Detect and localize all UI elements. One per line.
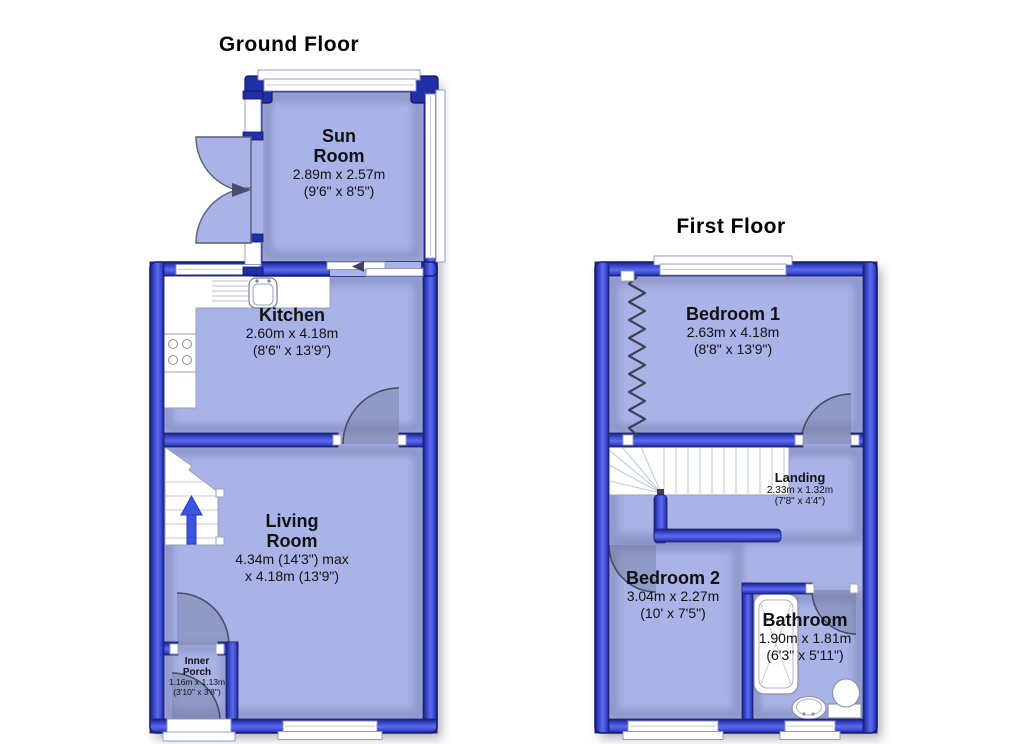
bathroom-label: Bathroom 1.90m x 1.81m (6'3" x 5'11"): [759, 610, 852, 663]
kitchen-living-wall: [164, 433, 338, 447]
door-step: [163, 732, 235, 741]
ground-right-wall: [423, 262, 437, 733]
bedroom1-label: Bedroom 1 2.63m x 4.18m (8'8" x 13'9"): [686, 304, 780, 357]
sun-room-left-window: [245, 99, 261, 133]
door-post: [216, 644, 224, 654]
room-name: Bedroom 1: [686, 304, 780, 324]
ground-left-wall: [150, 262, 164, 733]
room-dimensions-imperial: (3'10" x 3'8"): [169, 688, 225, 698]
room-dimensions-imperial: (9'6" x 8'5"): [293, 183, 386, 200]
door-post: [806, 584, 814, 593]
room-dimensions-metric: 2.89m x 2.57m: [293, 166, 386, 183]
door-post: [795, 435, 803, 445]
bathroom-wall-vertical: [742, 583, 753, 719]
french-doors-swing: [196, 137, 251, 243]
room-dimensions-metric: 2.63m x 4.18m: [686, 324, 780, 341]
room-dimensions-imperial: (6'3" x 5'11"): [759, 647, 852, 664]
room-name: Bedroom 2: [626, 568, 720, 588]
bathroom-wall-top: [742, 583, 812, 594]
inner-porch-label: Inner Porch 1.16m x 1.13m (3'10" x 3'8"): [169, 656, 225, 697]
room-name: Room: [235, 531, 348, 551]
room-dimensions-imperial: (8'8" x 13'9"): [686, 341, 780, 358]
hob: [164, 334, 196, 372]
room-dimensions-metric: 3.04m x 2.27m: [626, 588, 720, 605]
first-left-wall: [595, 262, 609, 733]
door-post: [170, 644, 178, 654]
sliding-door: [327, 261, 423, 276]
window-sill: [278, 732, 382, 740]
kitchen-label: Kitchen 2.60m x 4.18m (8'6" x 13'9"): [246, 305, 339, 358]
door-post: [850, 584, 858, 593]
window-cap: [243, 267, 263, 275]
first-floor-title: First Floor: [676, 215, 785, 239]
door-post: [333, 435, 341, 445]
room-name: Kitchen: [246, 305, 339, 325]
door-post: [621, 271, 634, 281]
room-dimensions-metric: 2.60m x 4.18m: [246, 325, 339, 342]
room-dimensions-imperial: (8'6" x 13'9"): [246, 342, 339, 359]
ground-floor-title: Ground Floor: [219, 33, 359, 57]
room-dimensions-metric: 1.90m x 1.81m: [759, 630, 852, 647]
window-sill: [780, 732, 840, 740]
sun-room-label: Sun Room 2.89m x 2.57m (9'6" x 8'5"): [293, 126, 386, 199]
window-cap: [243, 91, 263, 99]
window-sill: [258, 70, 420, 80]
landing-label: Landing 2.33m x 1.32m (7'8" x 4'4"): [767, 471, 833, 507]
basin: [792, 697, 826, 720]
porch-side-wall: [226, 642, 238, 719]
room-name: Bathroom: [759, 610, 852, 630]
bedroom2-label: Bedroom 2 3.04m x 2.27m (10' x 7'5"): [626, 568, 720, 621]
door-post: [851, 435, 859, 445]
bedroom1-wall: [609, 433, 803, 447]
room-name: Room: [293, 146, 386, 166]
door-post: [623, 435, 633, 445]
living-room-label: Living Room 4.34m (14'3") max x 4.18m (1…: [235, 511, 348, 584]
window-sill: [436, 90, 445, 262]
room-name: Inner: [169, 656, 225, 667]
room-dimensions-metric: 2.33m x 1.32m: [767, 485, 833, 496]
room-dimensions-metric: x 4.18m (13'9"): [235, 568, 348, 585]
room-dimensions-imperial: (7'8" x 4'4"): [767, 496, 833, 507]
floorplan-drawing: [0, 0, 1024, 744]
bedroom2-wall: [654, 529, 781, 542]
room-name: Living: [235, 511, 348, 531]
floorplan-canvas: Ground Floor Sun Room 2.89m x 2.57m (9'6…: [0, 0, 1024, 744]
room-dimensions-imperial: (10' x 7'5"): [626, 605, 720, 622]
door-post: [398, 435, 406, 445]
front-door-opening: [167, 719, 231, 733]
staircase-first: [609, 447, 789, 496]
window-sill: [623, 732, 723, 740]
room-name: Sun: [293, 126, 386, 146]
kitchen-sink: [249, 278, 277, 308]
first-right-wall: [863, 262, 877, 733]
room-name: Landing: [767, 471, 833, 485]
room-dimensions-metric: 4.34m (14'3") max: [235, 551, 348, 568]
